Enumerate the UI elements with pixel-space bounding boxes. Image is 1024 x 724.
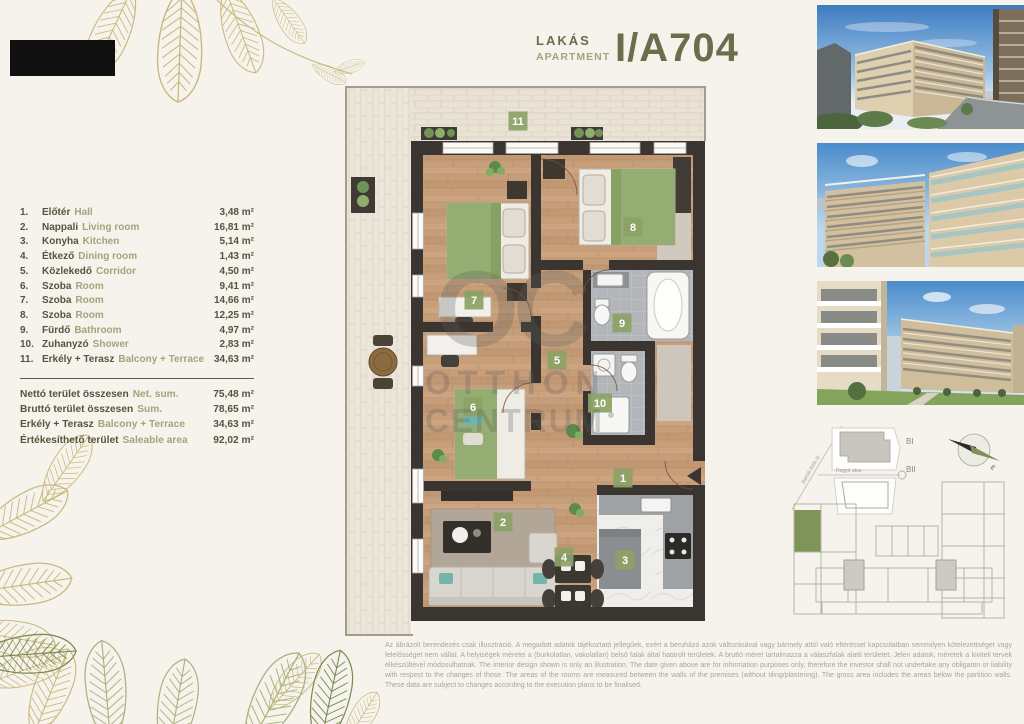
room-row: 7.SzobaRoom14,66 m² — [20, 294, 254, 309]
room-number: 2. — [20, 221, 42, 236]
room-name-hu: Szoba — [42, 281, 71, 292]
room-badge-7: 7 — [471, 295, 477, 307]
room-name-en: Room — [75, 295, 103, 306]
room-number: 6. — [20, 280, 42, 295]
room-area: 34,63 m² — [214, 353, 254, 368]
room-number: 1. — [20, 206, 42, 221]
room-row: 4.ÉtkezőDining room1,43 m² — [20, 250, 254, 265]
total-label-en: Balcony + Terrace — [98, 419, 185, 430]
room-list: 1.ElőtérHall3,48 m² 2.NappaliLiving room… — [20, 206, 254, 448]
total-label-hu: Értékesíthető terület — [20, 435, 119, 446]
room-name-en: Bathroom — [74, 325, 121, 336]
room-number: 3. — [20, 235, 42, 250]
room-area: 9,41 m² — [220, 280, 254, 295]
room-name-en: Room — [75, 281, 103, 292]
total-label-hu: Nettó terület összesen — [20, 389, 129, 400]
room-row: 9.FürdőBathroom4,97 m² — [20, 324, 254, 339]
total-value: 78,65 m² — [213, 402, 254, 417]
room-name-hu: Étkező — [42, 251, 74, 262]
apartment-number: I/A704 — [615, 26, 739, 71]
apartment-label-en: APARTMENT — [536, 51, 610, 63]
room-area: 4,50 m² — [220, 265, 254, 280]
logo-box — [10, 40, 115, 76]
room-name-hu: Szoba — [42, 295, 71, 306]
room-name-hu: Zuhanyzó — [42, 339, 89, 350]
room-name-hu: Fürdő — [42, 325, 70, 336]
room-area: 3,48 m² — [220, 206, 254, 221]
total-value: 75,48 m² — [213, 387, 254, 402]
total-row: Erkély + TeraszBalcony + Terrace34,63 m² — [20, 417, 254, 432]
total-value: 92,02 m² — [213, 433, 254, 448]
total-label-hu: Bruttó terület összesen — [20, 404, 133, 415]
room-row: 1.ElőtérHall3,48 m² — [20, 206, 254, 221]
floor-plan: 1 2 3 4 5 6 7 8 9 10 11 — [343, 83, 711, 641]
room-number: 11. — [20, 353, 42, 368]
building-label-b2: BII — [906, 465, 916, 474]
room-area: 14,66 m² — [214, 294, 254, 309]
room-area: 12,25 m² — [214, 309, 254, 324]
room-badge-1: 1 — [620, 473, 626, 485]
room-row: 6.SzobaRoom9,41 m² — [20, 280, 254, 295]
key-plan — [794, 482, 1004, 618]
brochure-page: LAKÁS APARTMENT I/A704 1.ElőtérHall3,48 … — [0, 0, 1024, 724]
room-row: 11.Erkély + TeraszBalcony + Terrace34,63… — [20, 353, 254, 368]
room-name-hu: Nappali — [42, 222, 78, 233]
location-map: Bartók Béla út Rogyó utca BI BII — [792, 426, 916, 514]
total-label-hu: Erkély + Terasz — [20, 419, 94, 430]
street-name-diagonal: Bartók Béla út — [801, 454, 822, 485]
room-area: 16,81 m² — [214, 221, 254, 236]
room-area: 1,43 m² — [220, 250, 254, 265]
room-name-hu: Közlekedő — [42, 266, 92, 277]
total-label-en: Saleable area — [123, 435, 188, 446]
room-number: 5. — [20, 265, 42, 280]
room-name-en: Dining room — [78, 251, 137, 262]
room-badge-9: 9 — [619, 318, 625, 330]
room-name-hu: Konyha — [42, 236, 79, 247]
room-number: 7. — [20, 294, 42, 309]
room-row: 3.KonyhaKitchen5,14 m² — [20, 235, 254, 250]
room-area: 4,97 m² — [220, 324, 254, 339]
disclaimer-text: Az ábrázolt berendezés csak illusztráció… — [385, 641, 1012, 691]
room-name-hu: Erkély + Terasz — [42, 354, 114, 365]
total-label-en: Sum. — [137, 404, 162, 415]
room-badge-8: 8 — [630, 222, 636, 234]
room-name-hu: Előtér — [42, 207, 70, 218]
building-label-b1: BI — [906, 437, 914, 446]
room-name-en: Living room — [82, 222, 139, 233]
room-name-en: Shower — [93, 339, 129, 350]
room-area: 2,83 m² — [220, 338, 254, 353]
room-row: 10.ZuhanyzóShower2,83 m² — [20, 338, 254, 353]
room-badge-6: 6 — [470, 402, 476, 414]
room-name-hu: Szoba — [42, 310, 71, 321]
room-row: 2.NappaliLiving room16,81 m² — [20, 221, 254, 236]
room-number: 9. — [20, 324, 42, 339]
street-name-horizontal: Rogyó utca — [836, 468, 862, 474]
room-row: 5.KözlekedőCorridor4,50 m² — [20, 265, 254, 280]
list-divider — [20, 378, 254, 379]
building-photo-3 — [817, 281, 1024, 405]
total-row: Bruttó terület összesenSum.78,65 m² — [20, 402, 254, 417]
room-name-en: Kitchen — [83, 236, 120, 247]
room-badge-4: 4 — [561, 552, 568, 564]
compass-label: É — [989, 464, 997, 472]
room-name-en: Hall — [74, 207, 92, 218]
total-label-en: Net. sum. — [133, 389, 179, 400]
room-badge-10: 10 — [594, 398, 606, 410]
room-name-en: Balcony + Terrace — [118, 354, 204, 365]
compass: É — [948, 434, 1000, 472]
building-photo-1 — [817, 5, 1024, 129]
total-row: Értékesíthető területSaleable area92,02 … — [20, 433, 254, 448]
room-area: 5,14 m² — [220, 235, 254, 250]
room-badge-3: 3 — [622, 555, 628, 567]
room-row: 8.SzobaRoom12,25 m² — [20, 309, 254, 324]
apartment-label-hu: LAKÁS — [536, 33, 610, 48]
room-number: 8. — [20, 309, 42, 324]
room-badge-2: 2 — [500, 517, 506, 529]
total-value: 34,63 m² — [213, 417, 254, 432]
room-badge-5: 5 — [554, 355, 560, 367]
room-name-en: Corridor — [96, 266, 136, 277]
apartment-header: LAKÁS APARTMENT — [536, 33, 610, 63]
site-plan: Bartók Béla út Rogyó utca BI BII É — [788, 418, 1020, 630]
building-photo-2 — [817, 143, 1024, 267]
room-number: 4. — [20, 250, 42, 265]
room-name-en: Room — [75, 310, 103, 321]
total-row: Nettó terület összesenNet. sum.75,48 m² — [20, 387, 254, 402]
highlighted-unit — [794, 510, 821, 552]
room-number: 10. — [20, 338, 42, 353]
room-badge-11: 11 — [512, 116, 524, 128]
